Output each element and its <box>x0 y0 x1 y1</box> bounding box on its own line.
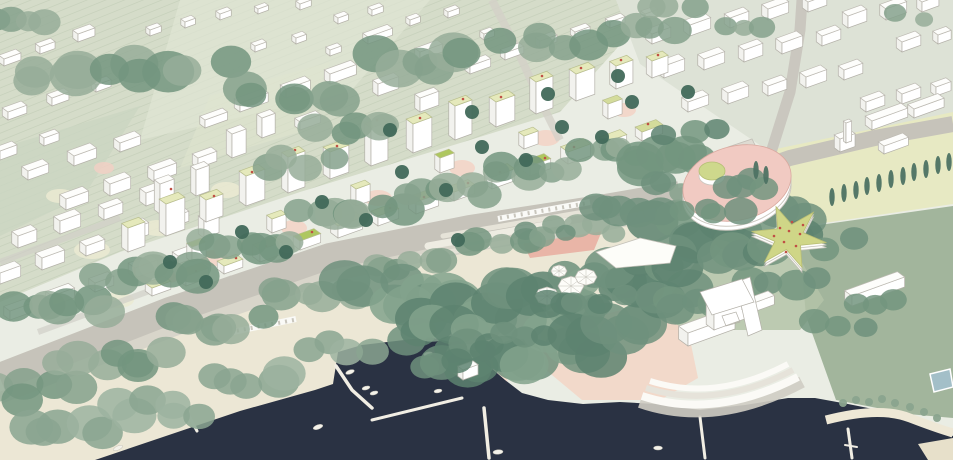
masterplan-stage <box>0 0 953 460</box>
swimming-pool <box>930 369 953 392</box>
aerial-masterplan-illustration <box>0 0 953 460</box>
